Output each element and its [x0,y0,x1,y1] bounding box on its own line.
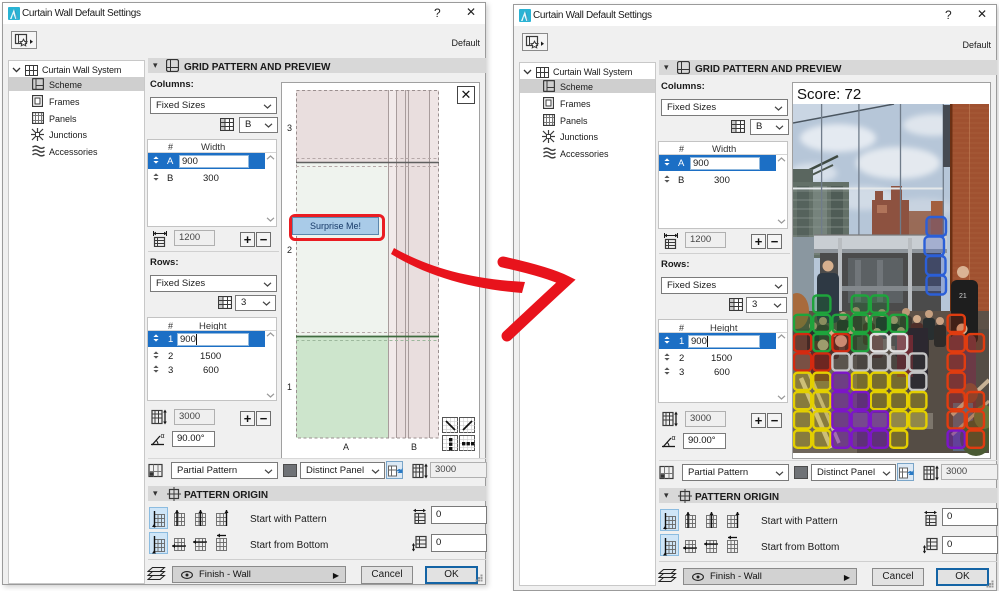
svg-text:21: 21 [959,293,967,300]
svg-text:α: α [672,435,676,442]
svg-text:Score: 72: Score: 72 [797,86,861,103]
svg-text:α: α [161,433,165,440]
